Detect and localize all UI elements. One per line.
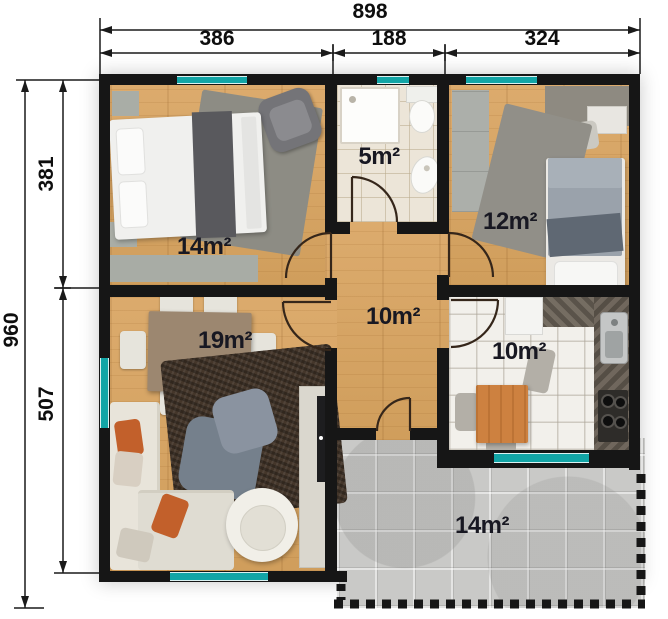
- label-bathroom-area: 5m²: [337, 144, 421, 170]
- label-living-room-area: 19m²: [183, 328, 267, 354]
- label-bedroom1-area: 14m²: [162, 234, 246, 260]
- label-terrace-area: 14m²: [440, 513, 524, 539]
- dim-left-total: 960: [2, 300, 22, 360]
- dim-top-seg-324: 324: [512, 29, 572, 49]
- dimension-lines: [0, 0, 668, 619]
- dim-top-seg-386: 386: [187, 29, 247, 49]
- dim-top-seg-188: 188: [359, 29, 419, 49]
- label-bedroom2-area: 12m²: [468, 209, 552, 235]
- dim-left-seg-507: 507: [37, 374, 57, 434]
- label-kitchen-area: 10m²: [477, 339, 561, 365]
- floor-plan: 898 386 188 324 960 381 507 14m² 5m² 12m…: [0, 0, 668, 619]
- dim-top-total: 898: [340, 2, 400, 22]
- dim-left-seg-381: 381: [37, 144, 57, 204]
- label-hallway-area: 10m²: [351, 304, 435, 330]
